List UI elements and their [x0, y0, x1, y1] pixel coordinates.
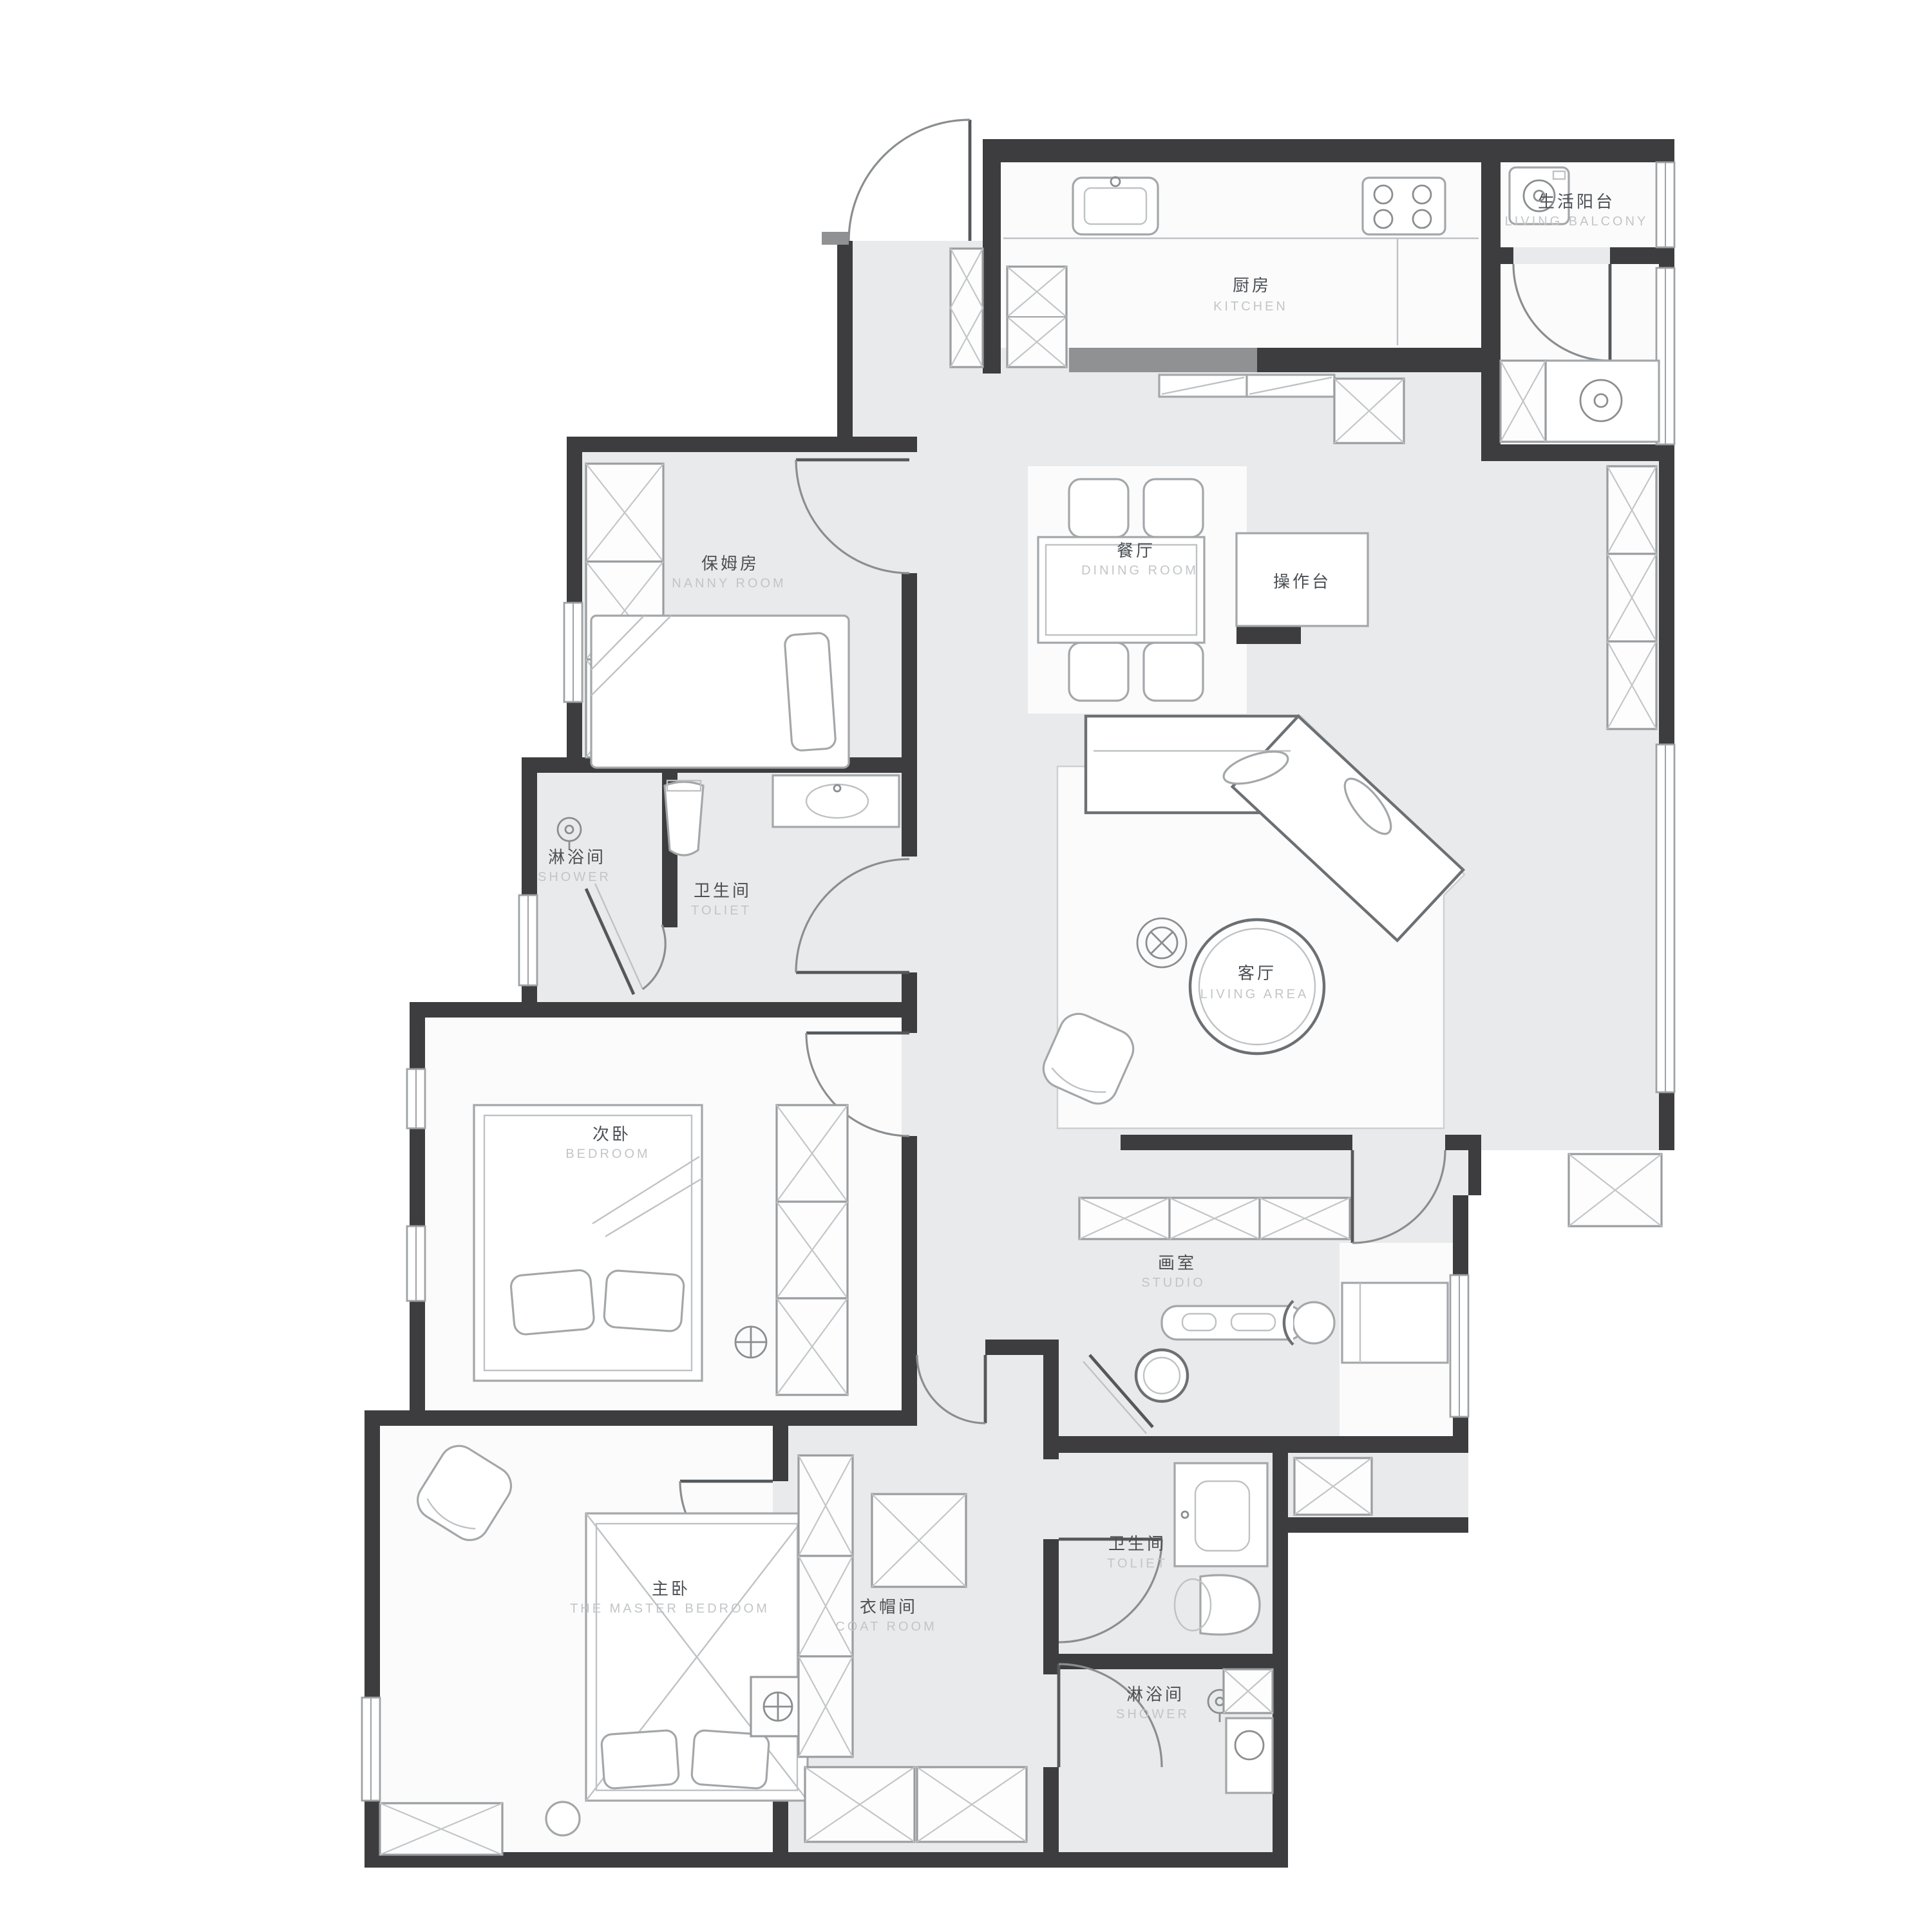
shower-right-cabinet — [1224, 1669, 1273, 1793]
window-nanny-left — [564, 603, 582, 702]
right-wall-cabinet — [1607, 466, 1656, 729]
window-studio-right — [1450, 1275, 1468, 1417]
room-label-studio-zh: 画室 — [1158, 1254, 1197, 1273]
room-label-coat-en: COAT ROOM — [835, 1620, 936, 1634]
bedroom-wardrobe — [777, 1105, 848, 1395]
room-label-bedroom-en: BEDROOM — [565, 1147, 650, 1161]
room-label-dining-zh: 餐厅 — [1117, 542, 1155, 561]
coat-wardrobe-box — [872, 1494, 966, 1587]
room-label-toilet-right-en: TOLIET — [1107, 1557, 1168, 1571]
room-label-shower-left-zh: 淋浴间 — [548, 848, 606, 867]
studio-stool — [1136, 1350, 1188, 1401]
window-living-right — [1656, 744, 1674, 1092]
room-label-nanny-en: NANNY ROOM — [672, 576, 786, 591]
room-label-balcony-zh: 生活阳台 — [1538, 193, 1615, 212]
floor-plan-canvas: 厨房 KITCHEN 生活阳台 LIVING BALCONY 餐厅 DINING… — [0, 0, 1932, 1932]
duct-box — [1294, 1458, 1372, 1515]
window-bay-box — [1569, 1154, 1662, 1226]
room-label-studio-en: STUDIO — [1141, 1276, 1206, 1290]
coat-wardrobe-column — [799, 1455, 853, 1757]
room-label-shower-right-zh: 淋浴间 — [1126, 1685, 1184, 1705]
bedroom-pillow — [510, 1269, 595, 1335]
kitchen-hob — [1363, 178, 1445, 234]
vanity-left — [773, 775, 899, 827]
master-bay-window — [380, 1803, 502, 1855]
studio-desk — [1342, 1283, 1448, 1363]
window-bedroom-left-2 — [407, 1226, 425, 1301]
master-pillow — [691, 1730, 770, 1789]
entry-door — [849, 120, 970, 241]
window-shower-left — [519, 895, 537, 985]
shaft-box — [751, 1677, 805, 1736]
master-pillow — [601, 1730, 679, 1789]
room-label-toilet-left-zh: 卫生间 — [694, 882, 752, 901]
room-label-coat-zh: 衣帽间 — [860, 1598, 918, 1617]
room-label-kitchen-en: KITCHEN — [1213, 299, 1288, 314]
room-label-dining-en: DINING ROOM — [1081, 563, 1198, 578]
master-stool — [546, 1802, 580, 1835]
room-label-living-en: LIVING AREA — [1200, 987, 1309, 1001]
room-label-toilet-right-zh: 卫生间 — [1108, 1535, 1166, 1554]
room-label-balcony-en: LIVING BALCONY — [1505, 214, 1649, 229]
room-label-nanny-zh: 保姆房 — [701, 554, 759, 574]
window-master-left — [362, 1698, 380, 1801]
room-label-bedroom-zh: 次卧 — [592, 1125, 631, 1144]
studio-bench — [1162, 1306, 1303, 1340]
tall-cabinet — [1334, 379, 1404, 443]
window-balcony-right — [1656, 162, 1674, 247]
room-label-living-zh: 客厅 — [1238, 964, 1276, 983]
room-label-kitchen-zh: 厨房 — [1233, 276, 1271, 296]
master-bed — [586, 1513, 808, 1801]
dining-chair — [1144, 643, 1203, 701]
studio-cabinets — [1079, 1198, 1350, 1239]
hall-cabinet — [951, 249, 983, 367]
studio-chair — [1284, 1301, 1334, 1345]
dining-chair — [1144, 479, 1203, 537]
room-label-shower-left-en: SHOWER — [538, 870, 611, 884]
bedroom-pillow — [603, 1270, 685, 1332]
window-bedroom-left-1 — [407, 1069, 425, 1128]
utility-counter — [1501, 361, 1659, 442]
nanny-bed — [591, 616, 849, 768]
dining-chair — [1069, 479, 1128, 537]
toilet-left-fixture — [665, 781, 703, 855]
room-label-toilet-left-en: TOLIET — [691, 904, 752, 918]
room-label-shower-right-en: SHOWER — [1116, 1707, 1189, 1721]
kitchen-cabinet — [1007, 267, 1066, 367]
room-label-master-en: THE MASTER BEDROOM — [570, 1602, 770, 1616]
room-label-counter-zh: 操作台 — [1273, 573, 1331, 592]
room-label-master-zh: 主卧 — [652, 1580, 690, 1599]
ceiling-symbol-bedroom — [735, 1327, 766, 1358]
living-rug — [1190, 920, 1324, 1054]
kitchen-bench — [1159, 375, 1334, 397]
nanny-pillow — [784, 632, 836, 751]
dining-chair — [1069, 643, 1128, 701]
vanity-right — [1175, 1463, 1267, 1566]
floor-plan-page: 厨房 KITCHEN 生活阳台 LIVING BALCONY 餐厅 DINING… — [0, 0, 1932, 1932]
